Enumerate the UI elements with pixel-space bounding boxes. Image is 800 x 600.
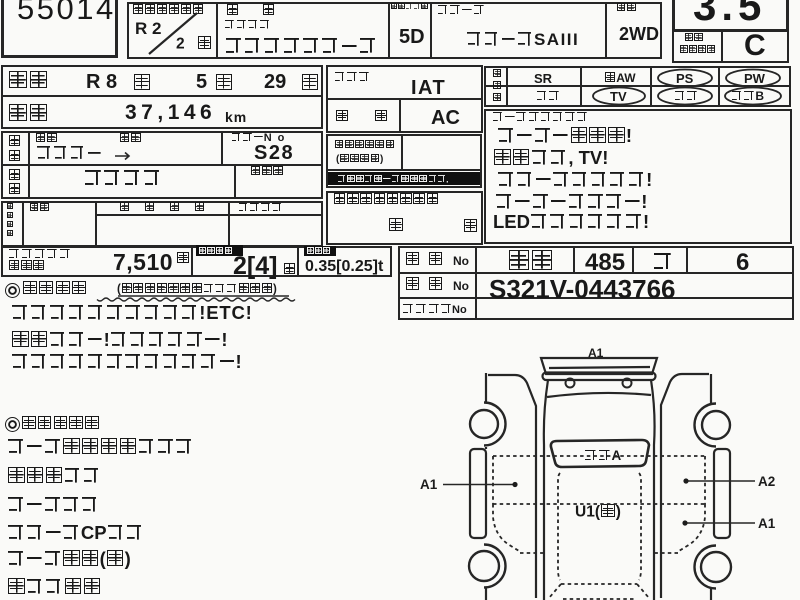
svg-text:A1: A1 xyxy=(588,346,604,360)
svg-text:A1: A1 xyxy=(420,477,438,492)
svg-text:A2: A2 xyxy=(758,474,775,489)
svg-text:A1: A1 xyxy=(758,516,776,531)
